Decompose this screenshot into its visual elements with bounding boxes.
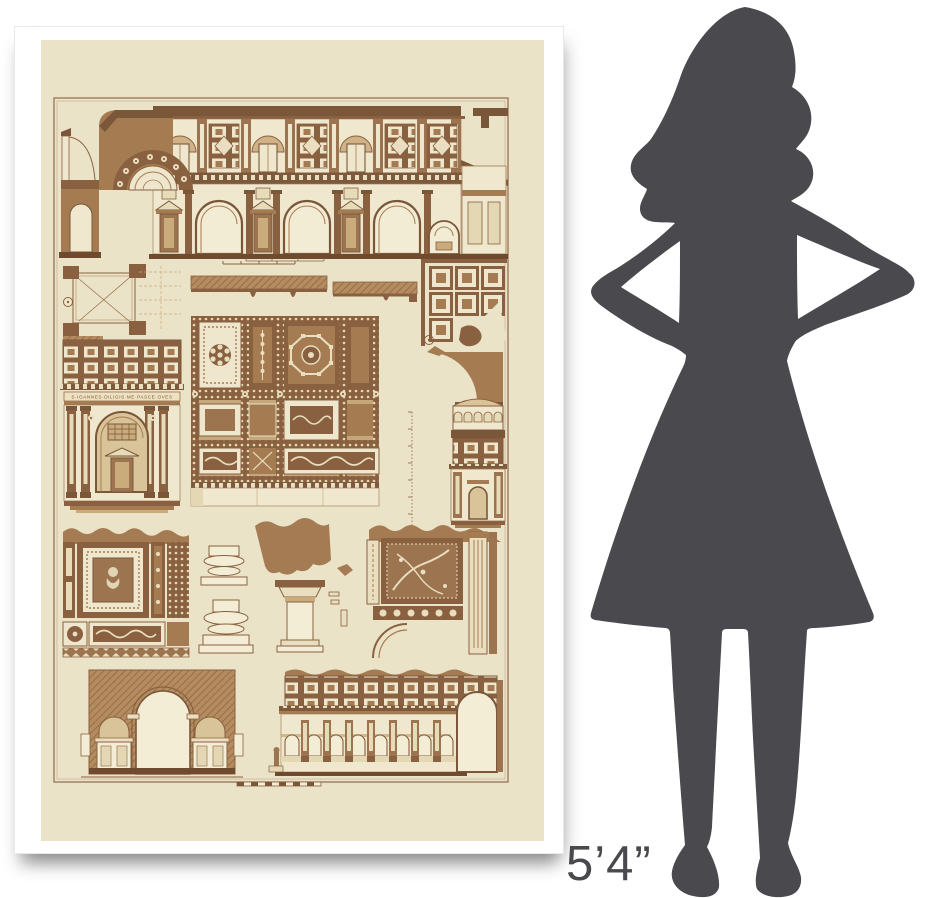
panel-ornate-ceiling [191,316,379,506]
panel-altar-aedicule-elevation: S·IOANNES·DILIGIS·ME·PASCE·OVES [60,340,184,513]
scale-ruler [237,782,321,786]
scale-comparison-image: S·IOANNES·DILIGIS·ME·PASCE·OVES [0,0,925,898]
panel-ceiling-section-profile [191,258,417,302]
woman-silhouette [585,5,920,898]
panel-ceiling-corner-ornament [367,525,501,658]
height-label: 5’4” [566,838,652,892]
panel-nave-section-elevation [59,106,508,264]
panel-column-base-profiles [199,546,253,653]
panel-coffered-ceiling-plan [421,259,507,348]
panel-niche-section [408,346,507,530]
panel-capital-fragment [255,518,353,652]
panel-ceiling-coffer-detail [63,528,189,657]
architectural-plate-drawing: S·IOANNES·DILIGIS·ME·PASCE·OVES [41,40,544,841]
panel-pier-plan [63,264,181,341]
poster-paper: S·IOANNES·DILIGIS·ME·PASCE·OVES [41,40,544,841]
panel-aisle-section [59,128,101,258]
frieze-inscription: S·IOANNES·DILIGIS·ME·PASCE·OVES [71,395,172,400]
panel-chapel-section [81,670,243,777]
poster-print: S·IOANNES·DILIGIS·ME·PASCE·OVES [14,26,564,854]
panel-arcade-elevation [237,670,503,787]
